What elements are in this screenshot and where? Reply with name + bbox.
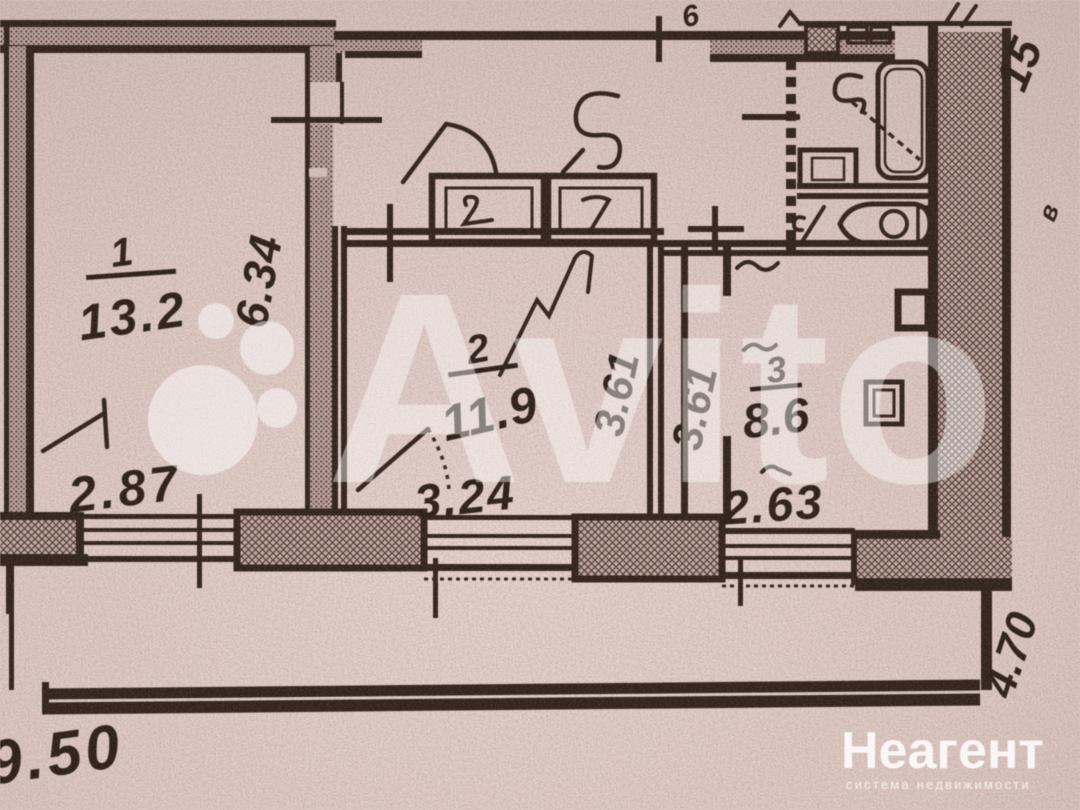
svg-text:Avito: Avito [326,236,996,540]
svg-text:Неагент: Неагент [841,722,1044,780]
svg-text:система недвижимости: система недвижимости [846,777,1031,792]
